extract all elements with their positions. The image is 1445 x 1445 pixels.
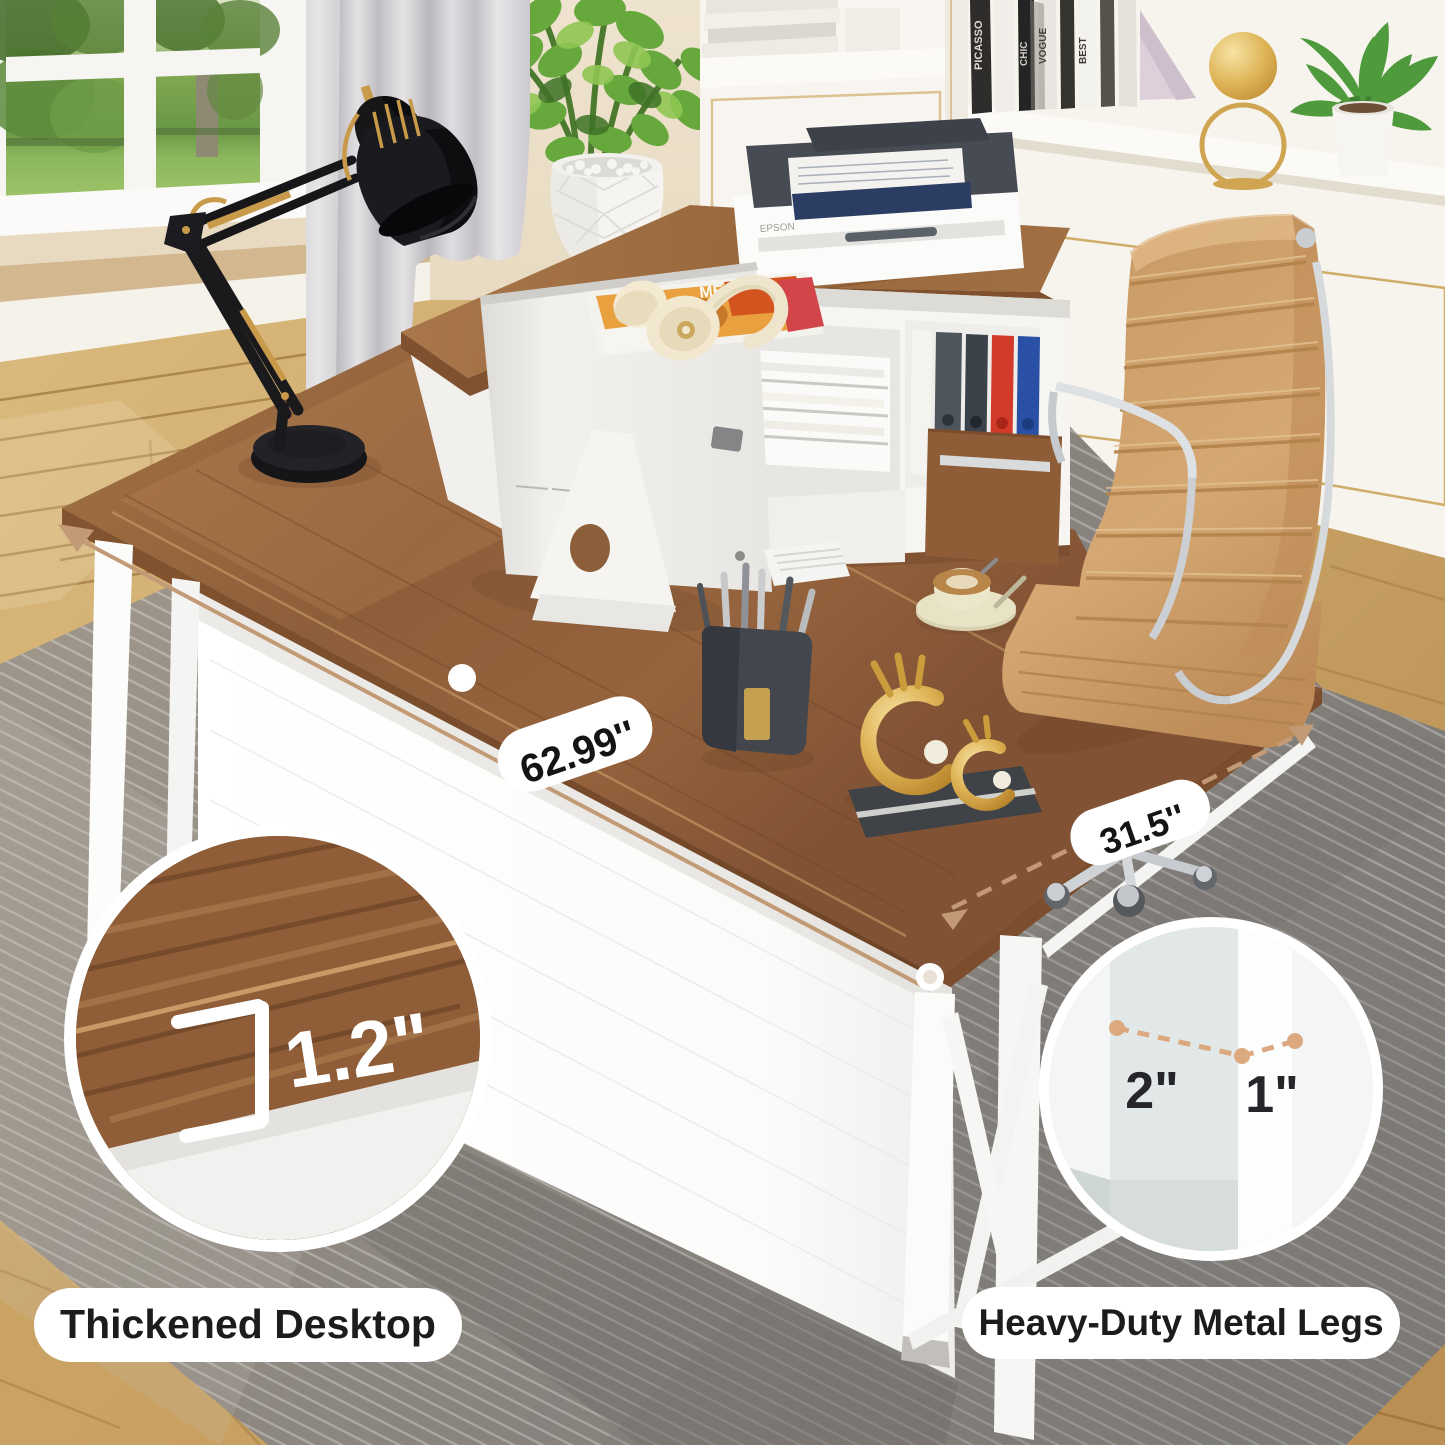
- svg-text:2": 2": [1125, 1062, 1179, 1120]
- svg-text:VOGUE: VOGUE: [1038, 28, 1049, 64]
- svg-text:1": 1": [1245, 1066, 1299, 1124]
- svg-text:Thickened Desktop: Thickened Desktop: [60, 1301, 436, 1347]
- svg-text:BEST: BEST: [1078, 37, 1089, 64]
- svg-text:CHIC: CHIC: [1019, 42, 1030, 66]
- svg-text:Heavy-Duty Metal Legs: Heavy-Duty Metal Legs: [978, 1302, 1383, 1343]
- svg-text:PICASSO: PICASSO: [973, 20, 985, 70]
